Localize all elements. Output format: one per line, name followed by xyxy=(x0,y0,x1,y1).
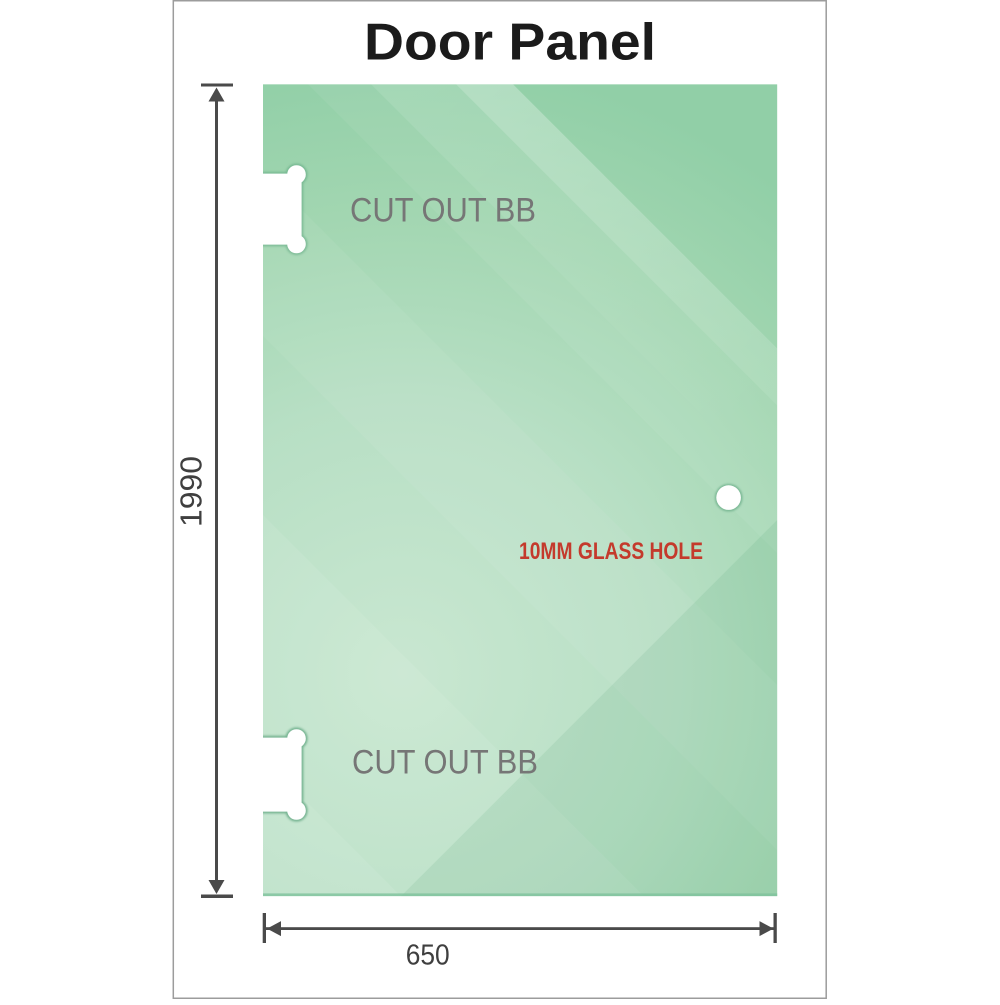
svg-text:CUT OUT BB: CUT OUT BB xyxy=(352,744,538,782)
svg-text:1990: 1990 xyxy=(174,456,209,527)
svg-text:650: 650 xyxy=(406,940,450,972)
svg-text:10MM GLASS HOLE: 10MM GLASS HOLE xyxy=(519,538,703,565)
svg-text:Door Panel: Door Panel xyxy=(364,14,656,72)
svg-text:CUT OUT BB: CUT OUT BB xyxy=(350,192,536,230)
